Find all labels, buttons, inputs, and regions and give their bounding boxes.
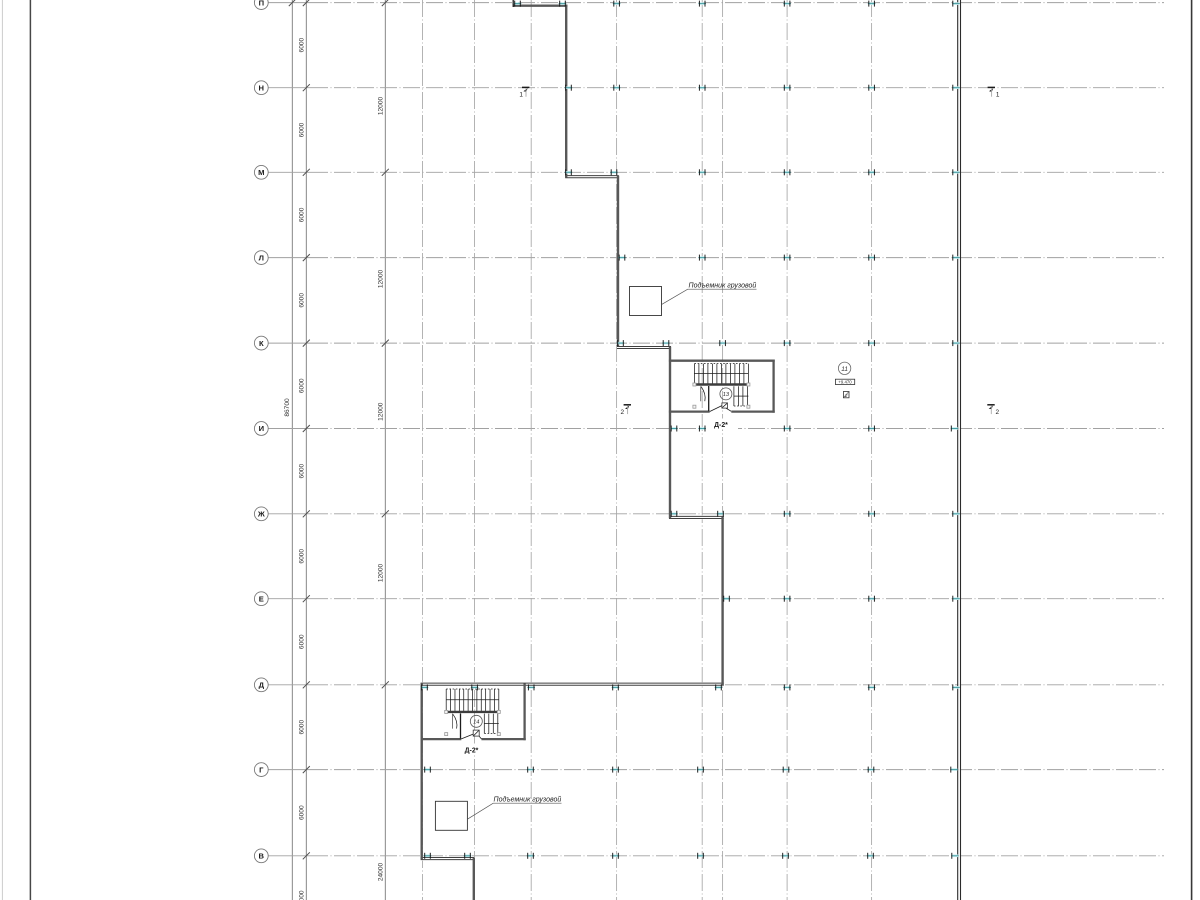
- svg-text:К: К: [259, 339, 264, 348]
- svg-text:В: В: [259, 852, 265, 861]
- svg-text:Е: Е: [259, 594, 264, 603]
- svg-text:М: М: [258, 168, 264, 177]
- svg-text:6000: 6000: [299, 37, 306, 52]
- svg-text:86700: 86700: [284, 398, 291, 417]
- svg-text:Подъемник грузовой: Подъемник грузовой: [689, 281, 757, 289]
- svg-text:6000: 6000: [299, 634, 306, 649]
- svg-text:Л: Л: [259, 253, 264, 262]
- svg-text:6000: 6000: [299, 378, 306, 393]
- svg-text:12000: 12000: [378, 564, 385, 583]
- svg-text:11: 11: [841, 366, 848, 373]
- svg-text:Д-2*: Д-2*: [714, 422, 728, 429]
- svg-text:14: 14: [473, 720, 479, 726]
- svg-text:12000: 12000: [378, 270, 385, 289]
- svg-text:П: П: [259, 0, 264, 7]
- svg-text:Ж: Ж: [257, 510, 265, 519]
- svg-text:Н: Н: [259, 83, 264, 92]
- svg-text:6000: 6000: [299, 549, 306, 564]
- svg-text:И: И: [259, 424, 264, 433]
- svg-text:2: 2: [996, 409, 1000, 416]
- svg-text:6000: 6000: [299, 122, 306, 137]
- svg-text:12000: 12000: [378, 97, 385, 116]
- svg-text:24000: 24000: [378, 863, 385, 882]
- svg-text:6000: 6000: [299, 805, 306, 820]
- svg-text:6000: 6000: [299, 463, 306, 478]
- svg-text:Д: Д: [259, 681, 265, 690]
- svg-text:2: 2: [844, 393, 848, 398]
- svg-text:6000: 6000: [299, 293, 306, 308]
- svg-text:12000: 12000: [378, 402, 385, 421]
- svg-text:13: 13: [723, 392, 730, 398]
- svg-text:2: 2: [621, 409, 625, 416]
- svg-text:Г: Г: [259, 765, 264, 774]
- svg-text:6000: 6000: [299, 890, 306, 900]
- svg-text:1: 1: [519, 91, 523, 98]
- svg-text:6000: 6000: [299, 207, 306, 222]
- svg-text:Подъемник грузовой: Подъемник грузовой: [494, 795, 562, 803]
- svg-text:1: 1: [996, 91, 1000, 98]
- svg-text:6000: 6000: [299, 720, 306, 735]
- svg-text:Д-2*: Д-2*: [465, 747, 479, 754]
- svg-text:+9.470: +9.470: [838, 379, 852, 384]
